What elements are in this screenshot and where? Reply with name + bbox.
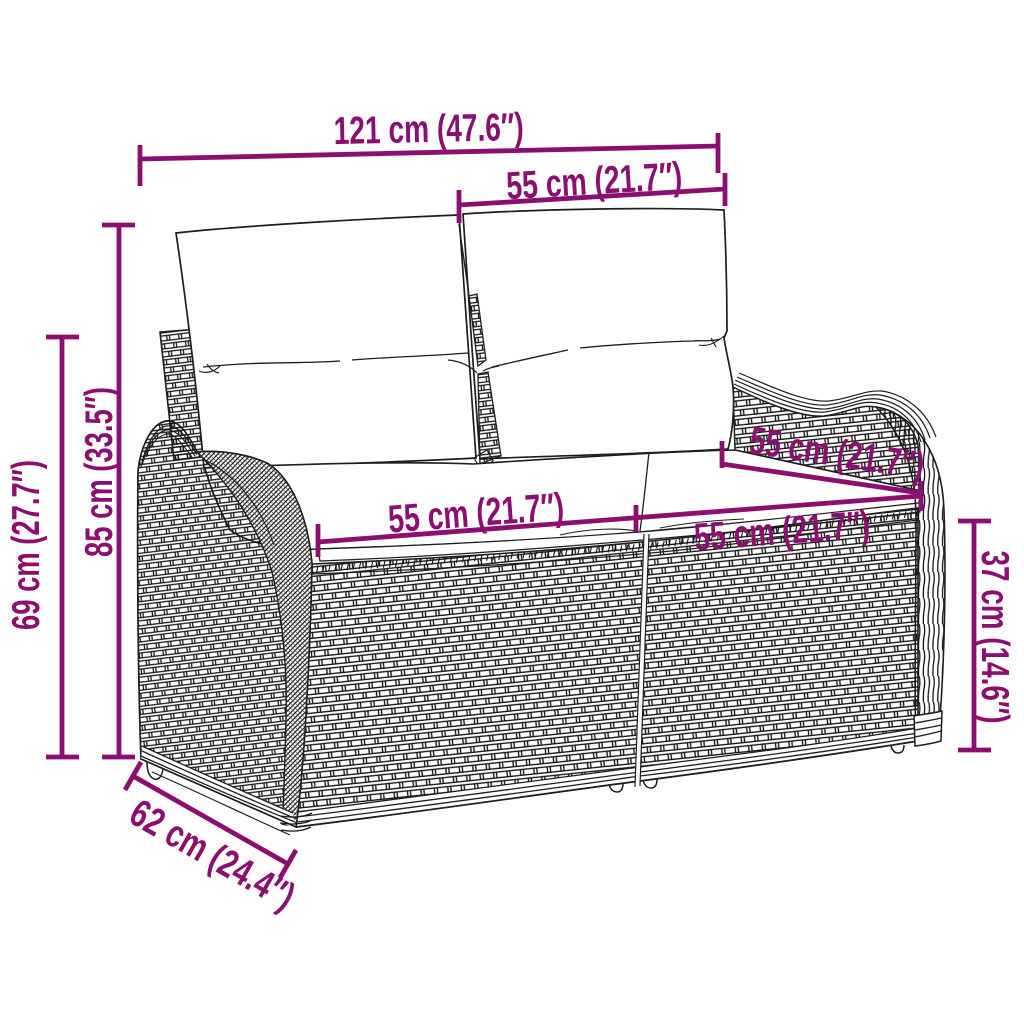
svg-text:85 cm (33.5″): 85 cm (33.5″) <box>78 387 121 557</box>
svg-text:37 cm (14.6″): 37 cm (14.6″) <box>973 551 1016 724</box>
svg-text:69 cm (27.7″): 69 cm (27.7″) <box>5 460 48 630</box>
svg-text:121 cm (47.6″): 121 cm (47.6″) <box>333 106 524 153</box>
